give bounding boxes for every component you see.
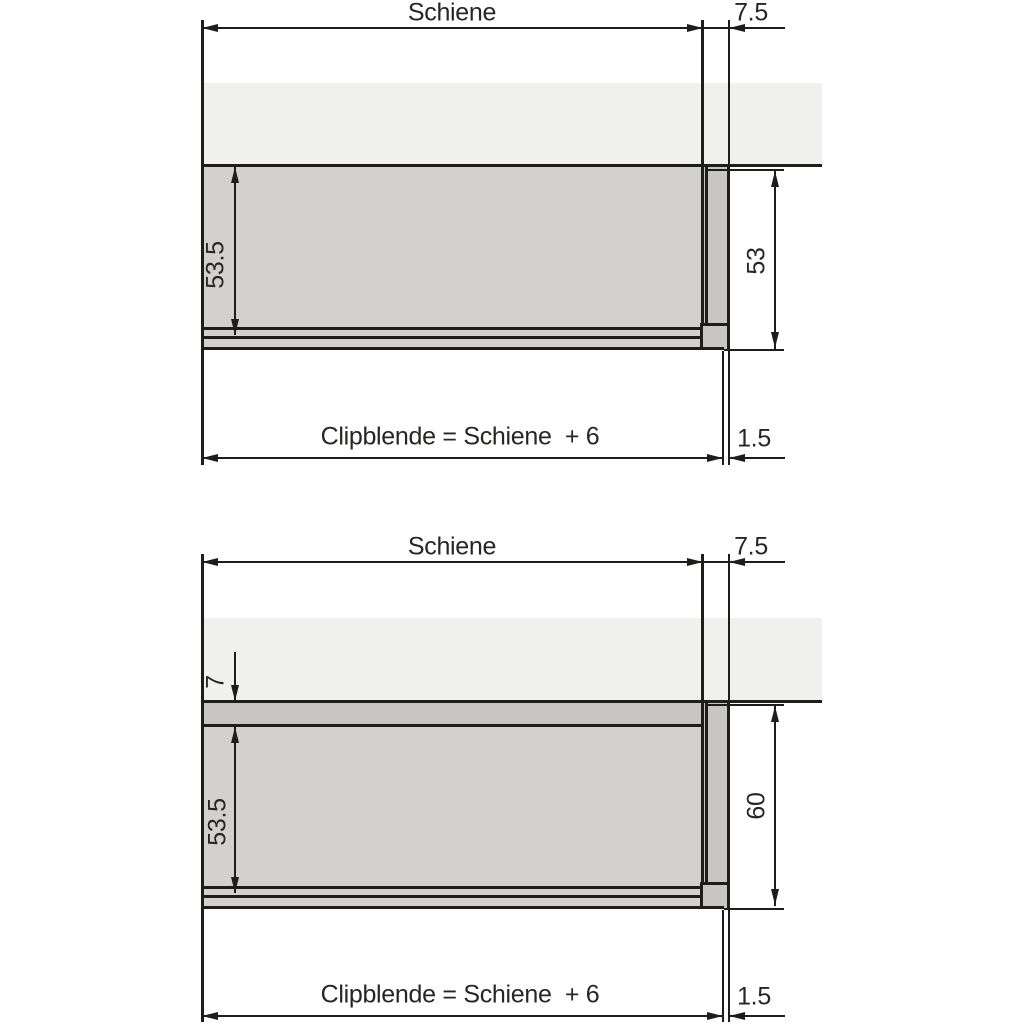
extension-line <box>728 351 730 465</box>
dim-arrow <box>687 558 703 566</box>
top-foot-left-edge <box>700 323 703 349</box>
extension-line <box>724 908 784 910</box>
dim-arrow <box>231 167 239 183</box>
top-rail-lip-line-2 <box>202 336 700 339</box>
top-rail-body <box>202 166 703 348</box>
top-clip-foot <box>700 324 729 349</box>
dim-arrow <box>729 454 745 462</box>
top-rail-right-edge <box>701 20 704 325</box>
bottom-clip-foot <box>700 883 729 908</box>
dim-line-clipblende-bottom <box>202 1015 723 1017</box>
dim-arrow <box>771 706 779 722</box>
dim-arrow <box>231 685 239 701</box>
dim-label-schiene-bottom: Schiene <box>408 535 496 560</box>
dim-label-top-offset-bottom: 7 <box>204 675 229 689</box>
extension-line <box>722 910 724 1022</box>
bottom-foot-left-edge <box>700 882 703 908</box>
dim-label-thickness-bottom: 1.5 <box>737 985 771 1010</box>
top-blende-bottom-edge <box>202 347 724 350</box>
bottom-left-edge-line <box>201 554 204 1022</box>
bottom-blende-bottom-edge <box>202 906 724 909</box>
dim-arrow <box>231 319 239 335</box>
dim-label-clip-height-top: 53 <box>745 247 770 274</box>
dim-arrow <box>202 1012 218 1020</box>
dim-label-offset-right-top: 7.5 <box>734 1 768 26</box>
bottom-foot-top-edge <box>700 882 727 885</box>
dim-line-clip-height-bottom <box>774 705 776 906</box>
dim-label-clipblende-formula-bottom: Clipblende = Schiene + 6 <box>321 983 600 1008</box>
technical-drawing-canvas: Schiene 7.5 53.5 53 Clipblende = Schiene… <box>0 0 1024 1024</box>
bottom-rail-lip-line-2 <box>202 895 700 898</box>
bottom-blende-top-lip <box>202 702 729 726</box>
bottom-rail-top-edge <box>202 724 703 727</box>
dim-arrow <box>231 877 239 893</box>
dim-label-rail-height-bottom: 53.5 <box>206 798 231 845</box>
dim-label-rail-height-top: 53.5 <box>204 241 229 288</box>
extension-line <box>728 910 730 1022</box>
dim-line-clip-height-top <box>774 170 776 349</box>
extension-line <box>728 554 730 702</box>
dim-label-clip-height-bottom: 60 <box>745 792 770 819</box>
bottom-rail-right-edge <box>701 554 704 883</box>
dim-line-rail-height-top <box>234 167 236 335</box>
dim-label-offset-right-bottom: 7.5 <box>734 535 768 560</box>
dim-arrow <box>202 454 218 462</box>
top-rail-lip-line-1 <box>202 327 700 330</box>
dim-label-clipblende-formula-top: Clipblende = Schiene + 6 <box>321 425 600 450</box>
dim-arrow <box>687 24 703 32</box>
dim-label-schiene-top: Schiene <box>408 1 496 26</box>
bottom-strip-left-edge <box>705 702 708 883</box>
dim-arrow <box>231 727 239 743</box>
bottom-strip-right-edge <box>727 702 730 909</box>
top-strip-left-edge <box>705 166 708 324</box>
dim-arrow <box>707 454 723 462</box>
dim-arrow <box>707 1012 723 1020</box>
dim-line-rail-height-bottom <box>234 727 236 893</box>
top-foot-top-edge <box>700 323 727 326</box>
bottom-rail-lip-line-1 <box>202 886 700 889</box>
dim-arrow <box>729 1012 745 1020</box>
dim-arrow <box>202 558 218 566</box>
dim-arrow <box>771 332 779 348</box>
dim-arrow <box>202 24 218 32</box>
dim-label-thickness-top: 1.5 <box>737 427 771 452</box>
bottom-rail-body <box>202 726 703 908</box>
dim-arrow <box>771 171 779 187</box>
dim-line-clipblende-top <box>202 457 723 459</box>
top-strip-right-edge <box>727 166 730 350</box>
extension-line <box>728 20 730 166</box>
extension-line <box>724 349 784 351</box>
dim-arrow <box>771 889 779 905</box>
extension-line <box>722 351 724 465</box>
